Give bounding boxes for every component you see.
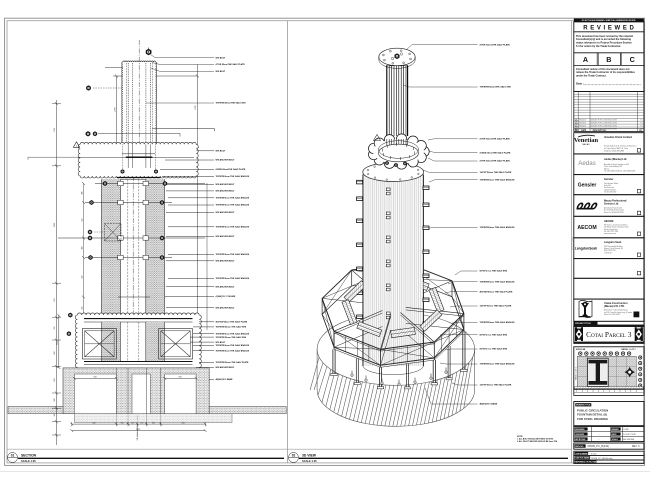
svg-text:TOP/BTM 6mm THK GALV ANGLES: TOP/BTM 6mm THK GALV ANGLES: [480, 363, 516, 366]
svg-text:under the Trade Contract.: under the Trade Contract.: [576, 75, 607, 78]
svg-text:W/S ANCHOR BOLT: W/S ANCHOR BOLT: [216, 183, 236, 186]
svg-text:50*50*6 mm THK GALV SHS: 50*50*6 mm THK GALV SHS: [480, 270, 508, 273]
svg-text:4 THK 50mmTHK GALV PLATE: 4 THK 50mmTHK GALV PLATE: [480, 43, 511, 46]
svg-text:400*200*50mm THK GALV PLATE: 400*200*50mm THK GALV PLATE: [216, 321, 248, 324]
svg-text:W/S ANCHOR BOLT: W/S ANCHOR BOLT: [216, 306, 236, 309]
svg-text:50*50*6 mm THK GALV SHS: 50*50*6 mm THK GALV SHS: [480, 333, 508, 336]
svg-text:02: 02: [292, 453, 296, 457]
svg-text:Gensler: Gensler: [578, 183, 597, 189]
svg-text:5.4 for action by the Trade Co: 5.4 for action by the Trade Contractor.: [576, 45, 621, 48]
svg-text:35/F Remarkable Building: 35/F Remarkable Building: [604, 246, 622, 248]
svg-text:JOB NUMBER:: JOB NUMBER:: [575, 453, 588, 455]
svg-text:TOP/BTM 6mm THK GALV ANGLES: TOP/BTM 6mm THK GALV ANGLES: [216, 344, 250, 347]
svg-text:Tel +853 2833 1028 Fax +853 2: Tel +853 2833 1028 Fax +853 2833 1028: [604, 171, 635, 173]
svg-text:365: 365: [81, 307, 83, 310]
svg-text:CAD FILE NAME:: CAD FILE NAME:: [575, 457, 590, 460]
svg-text:2592: 2592: [136, 429, 140, 431]
svg-text:1. ALL BOLT SHOULD BE FIXING O: 1. ALL BOLT SHOULD BE FIXING ON SITE.: [517, 438, 554, 441]
svg-text:DWG NO:: DWG NO:: [575, 446, 584, 448]
svg-text:TOP/BTM 50mm THK GALV SHS: TOP/BTM 50mm THK GALV SHS: [216, 326, 247, 329]
svg-text:4 [600] R.C COLUMN: 4 [600] R.C COLUMN: [216, 295, 236, 298]
svg-text:4 SIDE 50mmTHK GALV PLATE: 4 SIDE 50mmTHK GALV PLATE: [480, 151, 511, 154]
svg-text:REFERENCE ON FILE NAME: REFERENCE ON FILE NAME: [575, 461, 599, 464]
svg-text:4 THK 50mmTHK GALV PLATE: 4 THK 50mmTHK GALV PLATE: [480, 160, 511, 163]
svg-text:Tel 415.433.3700: Tel 415.433.3700: [604, 191, 616, 193]
svg-text:3-TC6_PC_B(434): 3-TC6_PC_B(434): [572, 236, 574, 250]
svg-text:Telephone: (853) 2882-8888: Telephone: (853) 2882-8888: [604, 150, 624, 152]
svg-text:550: 550: [54, 327, 56, 330]
svg-text:300: 300: [131, 422, 134, 424]
svg-text:944: 944: [182, 422, 185, 424]
svg-text:300: 300: [54, 414, 56, 417]
svg-text:DRAWING TITLE:: DRAWING TITLE:: [576, 404, 591, 407]
svg-text:DESIGNED: DESIGNED: [575, 429, 585, 431]
svg-text:3-TC6: 3-TC6: [591, 454, 597, 456]
svg-text:(Macau) CO. LTD.: (Macau) CO. LTD.: [604, 305, 625, 308]
svg-text:C: C: [630, 55, 635, 64]
svg-text:TOP/BTM 6mm THK GALV ANGLES: TOP/BTM 6mm THK GALV ANGLES: [216, 349, 250, 352]
svg-text:1789: 1789: [54, 128, 56, 132]
svg-text:CHECKED: CHECKED: [575, 434, 585, 436]
svg-text:600: 600: [54, 379, 56, 382]
svg-text:SECTION: SECTION: [21, 454, 37, 458]
svg-text:TOP/BTM 50mmTHK GALV SHS: TOP/BTM 50mmTHK GALV SHS: [480, 86, 512, 89]
svg-text:TOP/BTM 6mm THK GALV ANGLES: TOP/BTM 6mm THK GALV ANGLES: [480, 226, 516, 229]
svg-text:250: 250: [140, 422, 143, 424]
svg-text:562: 562: [81, 219, 83, 222]
svg-text:LUND: LUND: [623, 429, 629, 431]
svg-text:Aedas: Aedas: [578, 160, 596, 167]
svg-text:625: 625: [81, 276, 83, 279]
svg-text:Services Ltd.: Services Ltd.: [604, 202, 619, 205]
svg-text:40[600] R.C BASE: 40[600] R.C BASE: [480, 403, 498, 406]
svg-text:W/S ANCHOR BOLT: W/S ANCHOR BOLT: [216, 235, 236, 238]
svg-text:AECOM: AECOM: [604, 220, 613, 223]
svg-text:TOP/BTM 6mm THK GALV ANGLES: TOP/BTM 6mm THK GALV ANGLES: [480, 280, 516, 283]
svg-text:4 THK 50mmTHK GALV PLATE: 4 THK 50mmTHK GALV PLATE: [480, 138, 511, 141]
svg-text:W/S ANCHOR BOLT: W/S ANCHOR BOLT: [216, 366, 236, 369]
svg-text:R E V I E W E D: R E V I E W E D: [583, 26, 634, 32]
svg-text:944: 944: [94, 376, 97, 378]
svg-text:300: 300: [81, 192, 83, 195]
svg-text:3150B_PC_B(434): 3150B_PC_B(434): [587, 444, 609, 448]
svg-text:SCALE: SCALE: [612, 438, 619, 441]
svg-text:www.aecom.com: www.aecom.com: [604, 233, 617, 235]
svg-text:(853) 2833 1710: (853) 2833 1710: [604, 250, 616, 252]
svg-text:400*200*50mm THK GALV PLATE: 400*200*50mm THK GALV PLATE: [480, 290, 513, 293]
svg-text:AECOM: AECOM: [577, 225, 596, 231]
svg-text:SITE PLAN: SITE PLAN: [576, 348, 586, 351]
svg-text:120*6T*50mm THK GALV PLATE: 120*6T*50mm THK GALV PLATE: [480, 384, 512, 387]
svg-text:REV: C: REV: C: [632, 445, 640, 448]
svg-text:W/S ANCHOR BOLT: W/S ANCHOR BOLT: [216, 190, 236, 193]
svg-text:Date :: Date :: [576, 82, 584, 86]
svg-text:FOR STEEL DRAWING: FOR STEEL DRAWING: [577, 417, 609, 421]
svg-text:3D VIEW: 3D VIEW: [302, 454, 317, 458]
svg-text:120*6T*50mm THK GALV PLATE: 120*6T*50mm THK GALV PLATE: [480, 305, 512, 308]
svg-text:TOP/BTM 6mm THK GALV ANGLES: TOP/BTM 6mm THK GALV ANGLES: [216, 204, 250, 207]
svg-text:W/S BOLT: W/S BOLT: [216, 71, 226, 73]
svg-text:870: 870: [54, 299, 56, 302]
svg-text:1 28 88 28: 1 28 88 28: [604, 252, 612, 254]
svg-text:W/S ANCHOR BOLT: W/S ANCHOR BOLT: [216, 260, 236, 263]
svg-text:300: 300: [152, 422, 155, 424]
svg-text:B: B: [606, 55, 611, 64]
svg-text:550: 550: [57, 342, 59, 345]
svg-text:300: 300: [81, 247, 83, 250]
svg-text:PARCEL 1, LOT 3: PARCEL 1, LOT 3: [621, 348, 635, 351]
svg-text:Macau Tel: (853) 28378718: Macau Tel: (853) 28378718: [604, 212, 623, 214]
svg-text:W/S ANCHOR BOLT: W/S ANCHOR BOLT: [216, 285, 236, 288]
svg-text:Venetian Orient Limited: Venetian Orient Limited: [604, 136, 632, 139]
svg-text:California 94105: California 94105: [604, 189, 616, 191]
svg-text:4 THK 50mmTHK GALV PLATE: 4 THK 50mmTHK GALV PLATE: [216, 63, 246, 66]
svg-text:Langdon Seah: Langdon Seah: [604, 241, 622, 244]
svg-text:TOP/BTM 6mm THK GALV ANGLES: TOP/BTM 6mm THK GALV ANGLES: [216, 277, 250, 280]
svg-text:DESCRIPTION: DESCRIPTION: [593, 130, 607, 132]
svg-text:3000: 3000: [54, 223, 56, 227]
svg-text:A: A: [583, 55, 588, 64]
svg-text:120*6T*50mm THK GALV PLATE: 120*6T*50mm THK GALV PLATE: [480, 171, 512, 174]
svg-text:W/S ANCHOR BOLT: W/S ANCHOR BOLT: [216, 211, 236, 214]
svg-text:San Francisco: San Francisco: [604, 187, 614, 189]
svg-text:680: 680: [54, 352, 56, 355]
svg-text:no.258, Praca Kin Heng Long, 1: no.258, Praca Kin Heng Long, 18 andar: [604, 312, 633, 314]
svg-text:Tel +852 2317 7600: Tel +852 2317 7600: [604, 231, 618, 233]
svg-text:TOP/BTM 6mm THK GALV ANGLES: TOP/BTM 6mm THK GALV ANGLES: [216, 332, 250, 335]
svg-text:W/S BOLT: W/S BOLT: [216, 342, 226, 344]
svg-text:Gensler: Gensler: [604, 178, 613, 181]
svg-text:APPROVED: APPROVED: [575, 438, 586, 441]
svg-text:TOP/BTM 6mm THK GALV ANGLES: TOP/BTM 6mm THK GALV ANGLES: [216, 175, 250, 178]
svg-text:944: 944: [121, 422, 124, 424]
svg-text:SCALE 1:25: SCALE 1:25: [302, 459, 317, 463]
svg-text:Aedas (Macau) Ltd.: Aedas (Macau) Ltd.: [604, 158, 627, 161]
svg-text:50*50*6 mm THK GALV SHS: 50*50*6 mm THK GALV SHS: [480, 348, 508, 351]
svg-text:TOP/BTM 6mm THK GALV ANGLES: TOP/BTM 6mm THK GALV ANGLES: [216, 226, 250, 229]
svg-text:4 SIDE 50mmTHK GALV PLATE: 4 SIDE 50mmTHK GALV PLATE: [216, 168, 246, 171]
svg-text:DATE: DATE: [612, 433, 618, 436]
svg-text:TOP/BTM 6mm THK GALV ANGLES: TOP/BTM 6mm THK GALV ANGLES: [216, 253, 250, 256]
svg-text:TOP/BTM 6mm THK GALV ANGLES: TOP/BTM 6mm THK GALV ANGLES: [216, 197, 250, 200]
svg-text:TOP/BTM 6mm THK GALV ANGLES: TOP/BTM 6mm THK GALV ANGLES: [480, 321, 516, 324]
svg-text:TOP/BTM 50mm THK GALV SHS: TOP/BTM 50mm THK GALV SHS: [216, 336, 247, 339]
svg-text:W/S ANCHOR BOLT: W/S ANCHOR BOLT: [216, 159, 236, 162]
svg-text:DRAWN: DRAWN: [612, 428, 619, 431]
svg-text:2. ALL FILLET WELDED SHOULD BE: 2. ALL FILLET WELDED SHOULD BE 6mm THK.: [517, 440, 558, 443]
svg-text:No. 594, Edf. BCM 14 andar: No. 594, Edf. BCM 14 andar: [604, 210, 624, 212]
svg-text:01: 01: [11, 453, 15, 457]
svg-text:W/S BOLT: W/S BOLT: [216, 57, 226, 59]
svg-text:AS SHOWN: AS SHOWN: [623, 438, 634, 441]
svg-text:800: 800: [93, 422, 96, 424]
svg-text:Venetian: Venetian: [574, 137, 599, 144]
svg-text:TOP/BTM 6mm THK GALV ANGLES: TOP/BTM 6mm THK GALV ANGLES: [480, 178, 516, 181]
svg-text:TOP/BTM 50mm THK GALV PLATE: TOP/BTM 50mm THK GALV PLATE: [216, 361, 250, 364]
svg-text:14 JULY 2015: 14 JULY 2015: [623, 434, 636, 436]
svg-text:DATE: DATE: [581, 129, 587, 132]
svg-text:Macau Tel: 2870 0389: Macau Tel: 2870 0389: [604, 314, 620, 316]
svg-text:SCALE 1:25: SCALE 1:25: [21, 459, 36, 463]
svg-text:97: 97: [136, 438, 138, 440]
svg-text:380: 380: [54, 399, 56, 402]
svg-text:944: 944: [179, 376, 182, 378]
svg-text:LangdonSeah: LangdonSeah: [575, 247, 597, 251]
svg-text:W/S BOLT: W/S BOLT: [216, 151, 226, 153]
svg-text:40[600] R.C BASE: 40[600] R.C BASE: [216, 378, 234, 381]
svg-text:MACAU: MACAU: [582, 143, 590, 146]
svg-text:TOP/BTM 50mmTHK GALV SHS: TOP/BTM 50mmTHK GALV SHS: [216, 102, 247, 105]
